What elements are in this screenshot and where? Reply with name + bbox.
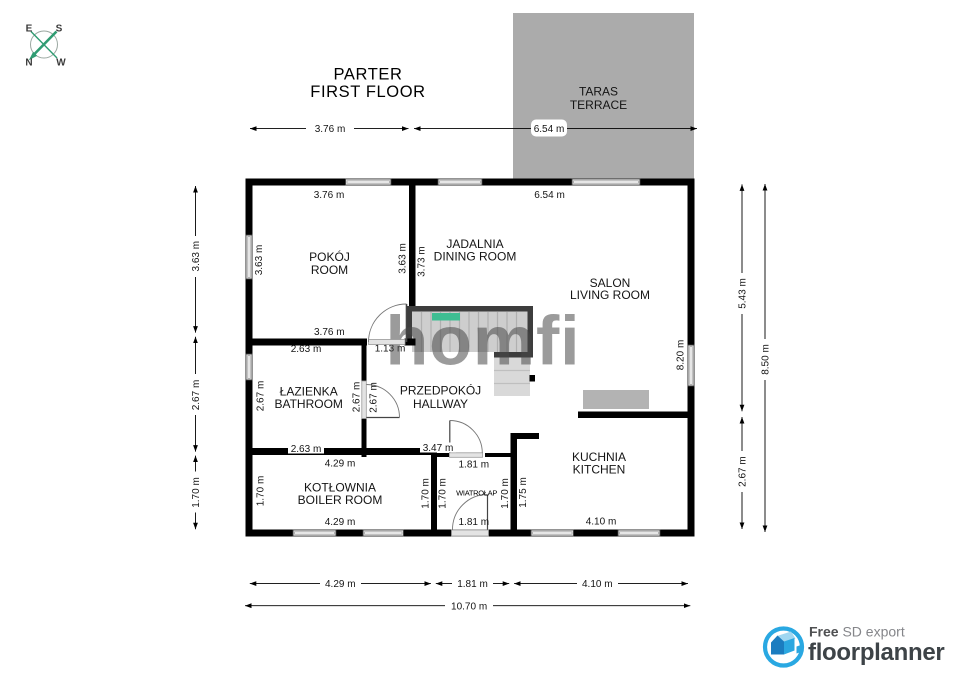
svg-text:FIRST FLOOR: FIRST FLOOR [310, 83, 425, 101]
svg-text:W: W [56, 58, 66, 69]
svg-text:2.67 m: 2.67 m [191, 380, 202, 411]
svg-text:BOILER ROOM: BOILER ROOM [298, 493, 383, 507]
svg-text:2.67 m: 2.67 m [255, 381, 266, 412]
svg-text:TARAS: TARAS [579, 85, 618, 99]
svg-text:1.81 m: 1.81 m [457, 579, 488, 590]
svg-text:BATHROOM: BATHROOM [274, 397, 342, 411]
svg-text:8.50 m: 8.50 m [761, 344, 772, 375]
svg-text:Free SD export: Free SD export [809, 624, 905, 640]
svg-text:1.81 m: 1.81 m [459, 517, 490, 528]
svg-text:6.54 m: 6.54 m [534, 190, 565, 201]
svg-text:4.10 m: 4.10 m [582, 579, 613, 590]
svg-text:2.67 m: 2.67 m [738, 456, 749, 487]
svg-text:4.29 m: 4.29 m [325, 517, 356, 528]
svg-text:5.43 m: 5.43 m [738, 278, 749, 309]
svg-text:PARTER: PARTER [333, 66, 402, 84]
svg-text:HALLWAY: HALLWAY [413, 397, 468, 411]
svg-text:4.29 m: 4.29 m [325, 579, 356, 590]
svg-text:floorplanner: floorplanner [808, 639, 944, 666]
svg-text:LIVING ROOM: LIVING ROOM [570, 288, 650, 302]
svg-text:DINING ROOM: DINING ROOM [434, 250, 517, 264]
svg-text:2.63 m: 2.63 m [291, 344, 322, 355]
svg-text:10.70 m: 10.70 m [451, 601, 487, 612]
svg-text:PRZEDPOKÓJ: PRZEDPOKÓJ [400, 383, 481, 398]
svg-text:3.76 m: 3.76 m [314, 190, 345, 201]
svg-text:KITCHEN: KITCHEN [573, 463, 626, 477]
svg-text:1.70 m: 1.70 m [500, 478, 511, 509]
svg-text:8.20 m: 8.20 m [676, 340, 687, 371]
svg-text:3.63 m: 3.63 m [254, 245, 265, 276]
svg-text:3.63 m: 3.63 m [191, 241, 202, 272]
svg-text:E: E [26, 24, 33, 35]
svg-text:1.70 m: 1.70 m [191, 477, 202, 508]
svg-text:S: S [56, 24, 63, 35]
svg-text:2.63 m: 2.63 m [291, 444, 322, 455]
svg-text:N: N [25, 58, 32, 69]
svg-text:1.81 m: 1.81 m [459, 460, 490, 471]
svg-text:6.54 m: 6.54 m [534, 124, 565, 135]
svg-text:1.75 m: 1.75 m [518, 477, 529, 508]
svg-text:1.70 m: 1.70 m [255, 476, 266, 507]
svg-text:WIATROŁAP: WIATROŁAP [456, 489, 497, 498]
svg-text:1.70 m: 1.70 m [420, 478, 431, 509]
svg-text:2.67 m: 2.67 m [368, 382, 379, 413]
svg-text:3.76 m: 3.76 m [315, 124, 346, 135]
svg-text:ROOM: ROOM [311, 263, 348, 277]
svg-text:3.47 m: 3.47 m [423, 443, 454, 454]
svg-text:4.29 m: 4.29 m [325, 459, 356, 470]
svg-text:1.70 m: 1.70 m [437, 478, 448, 509]
svg-text:2.67 m: 2.67 m [352, 382, 363, 413]
svg-text:4.10 m: 4.10 m [586, 517, 617, 528]
svg-text:TERRACE: TERRACE [570, 98, 627, 112]
svg-text:3.73 m: 3.73 m [416, 246, 427, 277]
svg-text:3.76 m: 3.76 m [314, 327, 345, 338]
svg-text:3.63 m: 3.63 m [398, 243, 409, 274]
